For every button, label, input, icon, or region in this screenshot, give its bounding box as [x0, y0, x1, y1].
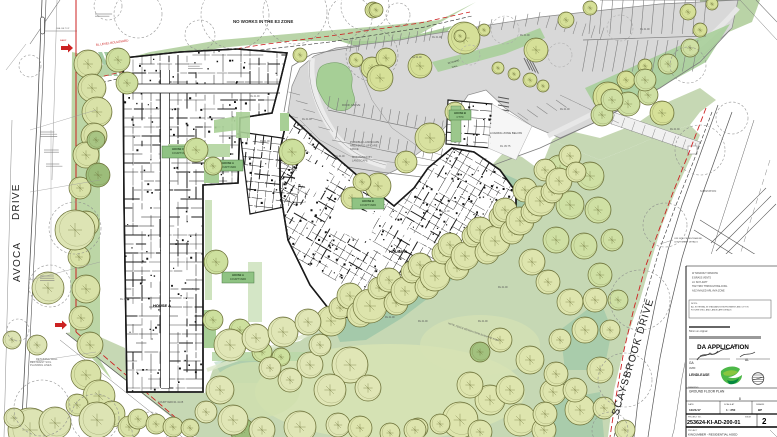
- svg-text:LENDLEASE: LENDLEASE: [689, 373, 710, 377]
- svg-text:RL 41.00: RL 41.00: [418, 320, 428, 323]
- svg-text:50mm on original: 50mm on original: [689, 330, 708, 333]
- svg-text:RL 41.00: RL 41.00: [640, 28, 650, 31]
- svg-text:CIVIL TIMBER DETAILS: CIVIL TIMBER DETAILS: [674, 241, 698, 244]
- svg-text:12/21/17: 12/21/17: [689, 408, 701, 412]
- svg-text:DIAL BE TOP: DIAL BE TOP: [56, 27, 70, 30]
- svg-text:LC SKYLIGHT: LC SKYLIGHT: [692, 281, 708, 284]
- svg-text:LOADING ZONE BELOW: LOADING ZONE BELOW: [490, 131, 522, 135]
- svg-text:RL 41.00: RL 41.00: [250, 95, 260, 98]
- svg-text:ISSUE: ISSUE: [745, 417, 752, 419]
- svg-text:FUTURE GRILL AND LANDSCAPE DET: FUTURE GRILL AND LANDSCAPE DETAILS: [691, 309, 732, 312]
- svg-text:OFF SITE PEDESTRIAN RD: OFF SITE PEDESTRIAN RD: [674, 237, 703, 240]
- svg-text:ROOF ABOVE: ROOF ABOVE: [342, 103, 360, 107]
- svg-text:RL 41.05: RL 41.05: [120, 298, 130, 301]
- svg-text:RL 41.00: RL 41.00: [670, 128, 680, 131]
- svg-text:HOUSE B: HOUSE B: [454, 111, 466, 115]
- svg-text:KINCUMBER - RESIDENTIAL AGED: KINCUMBER - RESIDENTIAL AGED: [688, 433, 738, 437]
- svg-text:RL 41.00: RL 41.00: [385, 316, 395, 319]
- svg-text:BP: BP: [758, 408, 762, 412]
- svg-text:RL 41.00: RL 41.00: [432, 36, 442, 39]
- svg-text:NOTE:: NOTE:: [691, 303, 698, 305]
- svg-text:RL 41.00: RL 41.00: [560, 108, 570, 111]
- svg-text:1 : 250: 1 : 250: [726, 408, 736, 412]
- svg-text:DATE: DATE: [688, 403, 694, 406]
- svg-text:RL 39.75: RL 39.75: [500, 144, 511, 148]
- svg-text:DRAWN: DRAWN: [756, 403, 765, 406]
- svg-text:HOUSE A: HOUSE A: [153, 303, 171, 308]
- svg-text:PROJECT NO.: PROJECT NO.: [688, 417, 702, 419]
- svg-text:LANDSCAPE: LANDSCAPE: [352, 159, 368, 163]
- svg-text:RL 41.00: RL 41.00: [478, 320, 488, 323]
- svg-text:HOUSE A: HOUSE A: [232, 273, 244, 277]
- svg-text:SCALE AT: SCALE AT: [724, 403, 735, 406]
- svg-text:CTYD: CTYD: [456, 115, 463, 119]
- svg-text:8: 8: [739, 397, 741, 401]
- svg-text:DA APPLICATION: DA APPLICATION: [697, 344, 749, 351]
- svg-text:E BRASS VENTS: E BRASS VENTS: [692, 276, 711, 279]
- svg-text:SPACE: SPACE: [350, 147, 359, 151]
- svg-text:RL 41.00: RL 41.00: [260, 140, 270, 143]
- svg-text:HOUSE B: HOUSE B: [389, 249, 407, 254]
- svg-text:AVOCA: AVOCA: [12, 242, 23, 282]
- svg-text:2: 2: [762, 417, 767, 426]
- svg-text:DRIVE: DRIVE: [11, 183, 22, 220]
- svg-text:COURTYARD: COURTYARD: [360, 203, 376, 207]
- svg-text:RL 41.00: RL 41.00: [498, 286, 508, 289]
- svg-text:SUBSTATION: SUBSTATION: [700, 189, 716, 193]
- svg-text:253624-KI-AD-200-01: 253624-KI-AD-200-01: [687, 420, 740, 426]
- svg-text:GROUND FLOOR PLAN: GROUND FLOOR PLAN: [689, 390, 725, 394]
- svg-text:AREA BUILD UP CARE: AREA BUILD UP CARE: [350, 144, 378, 148]
- svg-text:COURTYARD RL 41.05: COURTYARD RL 41.05: [158, 401, 184, 404]
- svg-text:HOUSE B: HOUSE B: [362, 199, 374, 203]
- svg-text:AL: AL: [745, 358, 749, 362]
- svg-text:POSSIBLE LANDSCAPE: POSSIBLE LANDSCAPE: [350, 140, 380, 144]
- svg-text:RAMP: RAMP: [60, 39, 67, 42]
- svg-text:RL 41.00: RL 41.00: [440, 210, 450, 213]
- svg-text:ALL EXTERNAL IN STANDARDS ENVI: ALL EXTERNAL IN STANDARDS ENVIRONMENT AN…: [691, 306, 749, 309]
- svg-text:HOUSE A: HOUSE A: [222, 161, 234, 165]
- svg-text:PLANNING LINES: PLANNING LINES: [30, 363, 52, 367]
- svg-text:COURTYARD: COURTYARD: [230, 277, 246, 281]
- svg-text:W HANDOUT WINDOW: W HANDOUT WINDOW: [692, 272, 719, 275]
- svg-text:NO WORKS IN THE E3 ZONE: NO WORKS IN THE E3 ZONE: [233, 19, 293, 24]
- svg-text:RL 41.00: RL 41.00: [412, 56, 422, 59]
- svg-text:RL 41.00: RL 41.00: [335, 155, 345, 158]
- svg-text:TDZ TRIO THROUGH BALCONL: TDZ TRIO THROUGH BALCONL: [692, 285, 728, 288]
- svg-text:RL 41.00: RL 41.00: [520, 34, 530, 37]
- svg-text:MAINTAINED BY: MAINTAINED BY: [352, 155, 372, 159]
- svg-text:AVBF: AVBF: [689, 366, 696, 370]
- svg-text:RL 41.00: RL 41.00: [302, 118, 312, 121]
- svg-text:ASZ AVHLED ARL AVIA ZONE: ASZ AVHLED ARL AVIA ZONE: [692, 290, 725, 293]
